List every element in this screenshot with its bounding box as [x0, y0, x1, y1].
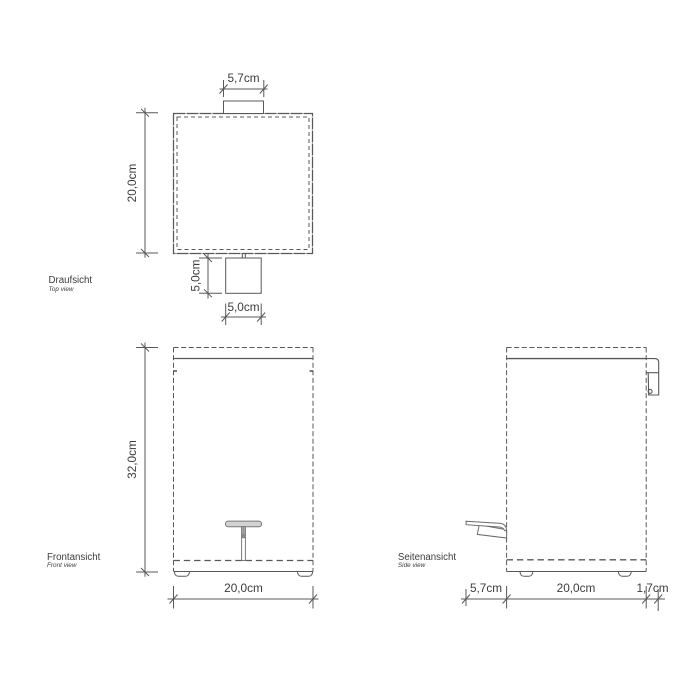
svg-text:20,0cm: 20,0cm [224, 581, 263, 595]
svg-text:Front view: Front view [47, 562, 77, 569]
svg-text:Top view: Top view [49, 286, 74, 293]
svg-text:1,7cm: 1,7cm [636, 581, 668, 595]
svg-text:5,7cm: 5,7cm [227, 71, 259, 85]
svg-text:20,0cm: 20,0cm [125, 163, 139, 202]
svg-text:20,0cm: 20,0cm [557, 581, 596, 595]
svg-text:32,0cm: 32,0cm [125, 440, 139, 479]
svg-text:Side view: Side view [398, 562, 426, 569]
svg-text:5,7cm: 5,7cm [470, 581, 502, 595]
svg-text:Draufsicht: Draufsicht [49, 275, 93, 286]
svg-text:5,0cm: 5,0cm [227, 300, 259, 314]
svg-text:5,0cm: 5,0cm [189, 259, 203, 291]
